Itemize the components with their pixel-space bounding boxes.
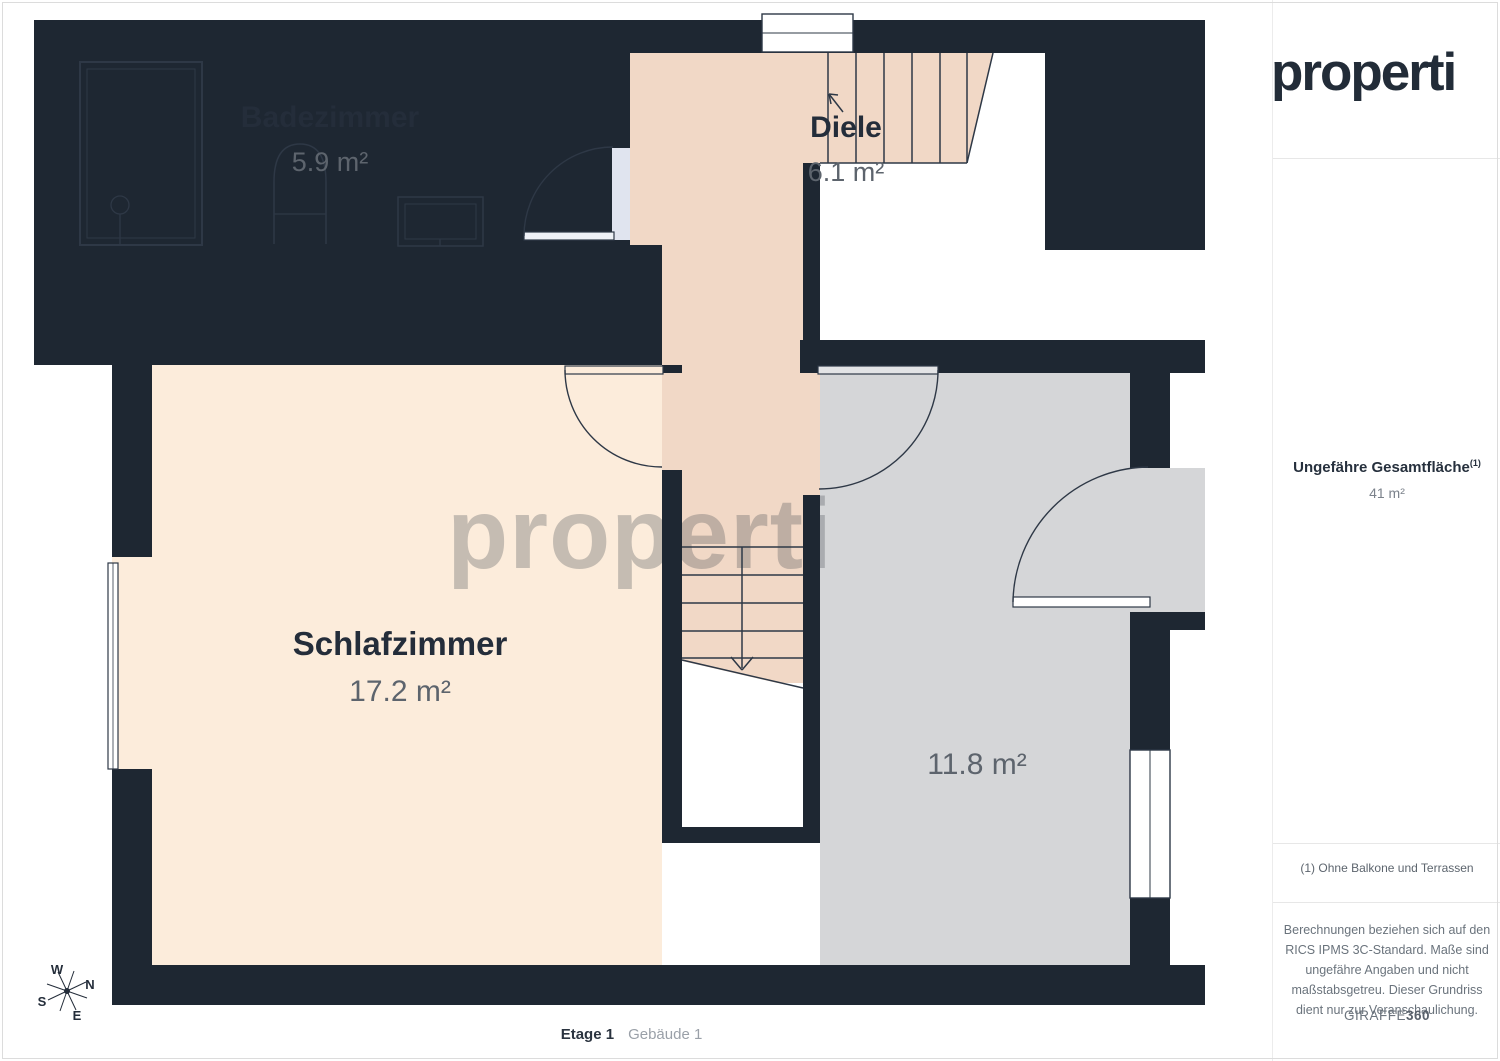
info-panel: properti Ungefähre Gesamtfläche(1) 41 m²… <box>1272 0 1500 1061</box>
vendor-logo: GIRAFFE360 <box>1273 1008 1500 1023</box>
wall-top-right-mass <box>1045 53 1205 250</box>
divider <box>1273 902 1500 903</box>
building-label: Gebäude 1 <box>628 1026 702 1043</box>
gray-room-area: 11.8 m² <box>927 748 1026 781</box>
void-gap <box>682 843 820 965</box>
wall-bay-bottom <box>1130 612 1205 630</box>
compass-s: S <box>38 994 47 1009</box>
wall-corridor-right-lower <box>803 495 820 843</box>
compass-w: W <box>51 962 64 977</box>
watermark-text: properti <box>447 478 833 590</box>
total-area-footnote-marker: (1) <box>1470 458 1481 468</box>
vendor-prefix: GIRAFFE <box>1344 1008 1406 1023</box>
gray-room-door-bay <box>1130 468 1205 612</box>
gray-room-right-door-leaf <box>1013 597 1150 607</box>
badezimmer-area: 5.9 m² <box>292 147 369 177</box>
diele-label: Diele <box>810 111 882 144</box>
wall-bedroom-right <box>662 470 682 843</box>
diele-area: 6.1 m² <box>808 157 885 187</box>
badezimmer-label: Badezimmer <box>241 101 420 134</box>
total-area-block: Ungefähre Gesamtfläche(1) 41 m² <box>1273 458 1500 501</box>
vendor-suffix: 360 <box>1406 1008 1430 1023</box>
gray-room-floor <box>820 373 1130 965</box>
divider <box>1273 158 1500 159</box>
wall-middle-band <box>111 245 662 365</box>
compass-icon <box>47 971 87 1011</box>
footnote-text: (1) Ohne Balkone und Terrassen <box>1273 861 1500 875</box>
wall-bottom <box>112 965 1205 1005</box>
wall-left-arm <box>34 20 111 365</box>
floor-plan: properti <box>0 0 1263 1061</box>
stairwell-void-lower <box>682 661 803 843</box>
bathroom-door-leaf <box>524 232 614 240</box>
wall-gray-room-right-upper <box>1130 373 1170 468</box>
gray-room-door-leaf <box>818 366 938 374</box>
floorplan-page: properti <box>0 0 1500 1061</box>
plan-caption: Etage 1Gebäude 1 <box>0 1026 1263 1043</box>
bedroom-floor <box>152 365 662 965</box>
stair-corridor-floor <box>662 245 820 683</box>
wall-gray-room-right-lower <box>1130 898 1170 965</box>
wall-void-bottom <box>662 827 820 843</box>
bathroom-door-opening <box>612 148 630 240</box>
schlafzimmer-area: 17.2 m² <box>349 675 451 708</box>
floor-label: Etage 1 <box>561 1026 614 1043</box>
total-area-label: Ungefähre Gesamtfläche(1) <box>1273 458 1500 476</box>
total-area-value: 41 m² <box>1273 485 1500 501</box>
bedroom-door-leaf <box>565 366 663 374</box>
compass-n: N <box>85 977 94 992</box>
brand-logo: properti <box>1271 42 1455 103</box>
wall-top-strip <box>620 20 1205 53</box>
divider <box>1273 843 1500 844</box>
total-area-label-text: Ungefähre Gesamtfläche <box>1293 459 1470 476</box>
wall-bedroom-right-stub <box>662 365 682 373</box>
schlafzimmer-label: Schlafzimmer <box>293 625 508 662</box>
wall-gray-room-right-mid <box>1130 612 1170 752</box>
disclaimer-text: Berechnungen beziehen sich auf den RICS … <box>1282 920 1492 1020</box>
compass-e: E <box>73 1008 82 1023</box>
